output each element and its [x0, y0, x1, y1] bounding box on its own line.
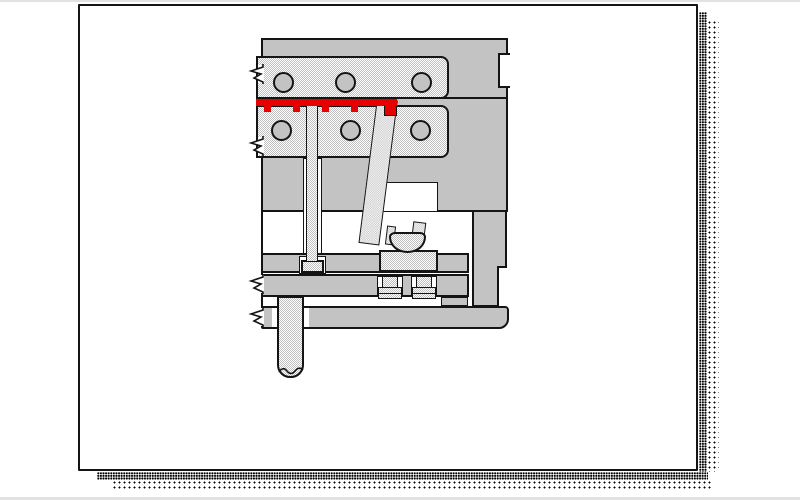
page-shadow-right-outer — [707, 20, 719, 472]
molded-part-band — [256, 97, 397, 106]
rod-clearance-right — [304, 308, 309, 327]
leader-hole-2 — [335, 72, 356, 93]
screen-top-edge — [0, 0, 800, 2]
top-plate-notch — [498, 53, 510, 88]
ejector-rod — [277, 296, 304, 378]
lifter-slide-block — [379, 250, 438, 272]
leader-hole-6 — [410, 120, 431, 141]
page-shadow-bottom-outer — [112, 480, 712, 491]
rest-pad — [441, 297, 468, 306]
ejector-pin — [306, 105, 318, 262]
molded-part-rib-3 — [322, 106, 329, 112]
leader-hole-3 — [411, 72, 432, 93]
bolt-head-line — [413, 293, 435, 294]
bolt-head-a — [378, 287, 402, 299]
bolt-head-b — [412, 287, 436, 299]
page-shadow-bottom-inner — [97, 472, 708, 480]
screenshot-canvas — [0, 0, 800, 500]
leader-hole-4 — [271, 120, 292, 141]
leader-hole-5 — [340, 120, 361, 141]
molded-part-rib-4 — [351, 106, 358, 112]
bolt-head-line — [379, 293, 401, 294]
ejector-base-plate — [261, 274, 469, 297]
leader-hole-1 — [273, 72, 294, 93]
molded-part-rib-1 — [264, 106, 271, 112]
page-shadow-right-inner — [699, 12, 707, 472]
molded-part-rib-2 — [293, 106, 300, 112]
